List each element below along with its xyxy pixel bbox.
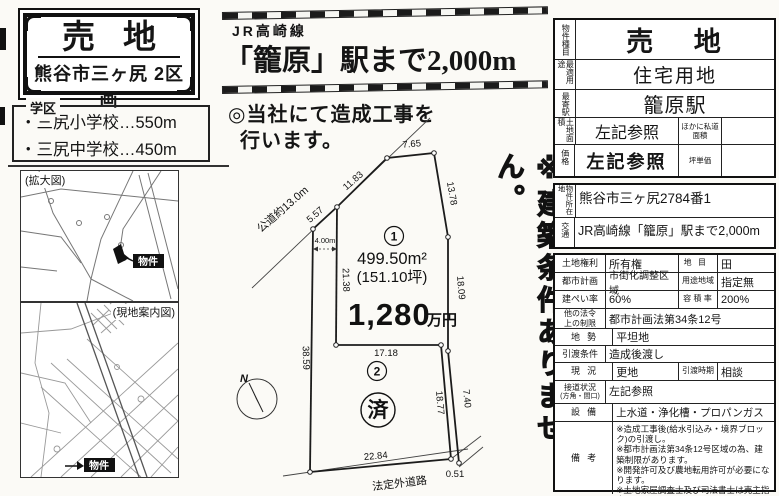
location-value: 熊谷市三ヶ尻2784番1 [576, 185, 774, 217]
measure-7-40: 7.40 [460, 389, 473, 409]
banner-divider [38, 56, 179, 58]
frame-ornament [25, 15, 41, 31]
row-label: 引渡条件 [555, 346, 606, 362]
other-restrictions-value: 都市計画法第34条12号 [606, 309, 774, 328]
banner-title: 売地 [27, 19, 191, 55]
row-handover-terms: 引渡条件 造成後渡し [555, 346, 774, 363]
private-road-area-label: ほかに私道面積 [678, 118, 722, 144]
row-label: 備考 [555, 422, 613, 494]
row-label: 物件種目 [555, 20, 576, 59]
north-label: N [240, 373, 249, 385]
row-label: 設備 [555, 404, 613, 421]
handover-timing-label: 引渡時期 [678, 363, 718, 380]
row-facilities: 設備 上水道・浄化槽・プロパンガス [555, 404, 774, 422]
property-marker-label: 物件 [89, 459, 109, 472]
measure-5-57: 5.57 [305, 205, 326, 225]
remarks-line: ※造成工事後(給水引込み・境界ブロック)の引渡し。 [616, 424, 771, 444]
row-topography: 地勢 平坦地 [555, 329, 774, 346]
row-label-line2: (方角・間口) [560, 393, 600, 401]
lot1-price: 1,280 [348, 297, 431, 332]
public-road-label: 公道約13.0m [254, 183, 311, 235]
row-label: 土地権利 [555, 255, 606, 272]
frame-ornament [177, 15, 193, 31]
property-marker-label: 物件 [138, 255, 158, 268]
frame-ornament [25, 77, 41, 93]
lot2-sold-stamp: 済 [368, 398, 390, 422]
measure-21-38: 21.38 [340, 268, 352, 292]
nearest-station-value: 籠原駅 [576, 90, 774, 117]
lot1-area-tsubo: (151.10坪) [357, 269, 428, 286]
row-property-type: 物件種目 売地 [555, 20, 774, 60]
row-city-planning: 都市計画 市街化調整区域 用途地域 指定無 [555, 273, 774, 291]
floor-area-ratio-value: 200% [718, 291, 774, 308]
row-label: 接道状況 (方角・間口) [555, 381, 606, 403]
row-label-line2: 上の制限 [564, 319, 596, 329]
measure-17-18: 17.18 [374, 348, 398, 359]
spec-table-block2: 物件所在地 熊谷市三ヶ尻2784番1 交通 JR高崎線「籠原」駅まで2,000m [553, 183, 776, 249]
row-label: 他の法令 上の制限 [555, 309, 606, 328]
row-land-area: 土地面積 左記参照 ほかに私道面積 [555, 118, 774, 145]
lot1-price-unit: 万円 [426, 312, 457, 329]
school-district-item: ・三尻中学校…450m [14, 140, 208, 161]
zoning-label: 用途地域 [678, 273, 718, 290]
city-planning-value: 市街化調整区域 [606, 273, 678, 290]
row-label: 土地面積 [555, 118, 576, 144]
measure-13-78: 13.78 [444, 181, 459, 206]
station-distance-headline: 「籠原」駅まで2,000m [224, 37, 516, 79]
measure-38-59: 38.59 [300, 346, 312, 370]
measure-18-09: 18.09 [454, 275, 467, 300]
row-other-restrictions: 他の法令 上の制限 都市計画法第34条12号 [555, 309, 774, 329]
price-value: 左記参照 [575, 145, 678, 176]
north-compass: N [237, 373, 277, 419]
remarks-text: ※造成工事後(給水引込み・境界ブロック)の引渡し。 ※都市計画法第34条12号区… [613, 422, 774, 494]
road-access-value: 左記参照 [606, 381, 774, 403]
measure-18-77: 18.77 [433, 390, 446, 415]
best-use-value: 住宅用地 [576, 60, 774, 89]
measure-4-00m: 4.00m [315, 236, 336, 245]
measure-22-84: 22.84 [363, 450, 388, 463]
arrow-icon [124, 254, 129, 261]
coverage-value: 60% [606, 291, 678, 308]
bottom-road-label: 法定外道路 [371, 473, 427, 494]
striped-bar [222, 6, 548, 20]
property-site-marker [113, 244, 126, 264]
row-label: 建ぺい率 [555, 291, 606, 308]
sale-banner-frame: 売地 熊谷市三ヶ尻 2区画 [23, 13, 195, 95]
row-remarks: 備考 ※造成工事後(給水引込み・境界ブロック)の引渡し。 ※都市計画法第34条1… [555, 422, 774, 494]
spec-table-block1: 物件種目 売地 最適用途 住宅用地 最寄駅 籠原駅 土地面積 左記参照 ほかに私… [553, 18, 776, 178]
row-coverage-ratio: 建ぺい率 60% 容積率 200% [555, 291, 774, 309]
row-label: 都市計画 [555, 273, 606, 290]
row-label: 最適用途 [555, 60, 576, 89]
facilities-value: 上水道・浄化槽・プロパンガス [613, 404, 774, 421]
current-state-value: 更地 [613, 363, 678, 380]
land-category-value: 田 [718, 255, 774, 272]
row-best-use: 最適用途 住宅用地 [555, 60, 774, 90]
location-guide-map-drawing: 物件 [21, 303, 178, 477]
enlarged-map: 物件 (拡大図) [20, 170, 179, 302]
row-label: 物件所在地 [555, 185, 576, 217]
lot1-number: 1 [391, 230, 398, 244]
access-value: JR高崎線「籠原」駅まで2,000m [575, 218, 774, 247]
remarks-line: ※都市計画法第34条12号区域の為、建築制限があります。 [616, 444, 771, 464]
measure-11-83: 11.83 [341, 169, 366, 192]
striped-bar [222, 80, 548, 94]
arrow-icon [77, 461, 84, 470]
sale-banner: 売地 熊谷市三ヶ尻 2区画 [18, 8, 200, 100]
private-road-area-value [722, 118, 774, 144]
flyer-page: 売地 熊谷市三ヶ尻 2区画 学区 ・三尻小学校…550m ・三尻中学校…450m [0, 0, 779, 496]
row-price: 価格 左記参照 坪単価 [555, 145, 774, 176]
lot1-left-boundary [336, 207, 337, 345]
spec-table-block3: 土地権利 所有権 地目 田 都市計画 市街化調整区域 用途地域 指定無 建ぺい率… [553, 253, 776, 492]
measure-0-51: 0.51 [446, 469, 465, 480]
school-district-box: 学区 ・三尻小学校…550m ・三尻中学校…450m [12, 105, 210, 162]
scan-artifact [0, 28, 6, 50]
scan-artifact [0, 107, 5, 125]
school-district-label: 学区 [26, 98, 60, 117]
enlarged-map-label: (拡大図) [23, 172, 67, 188]
row-location: 物件所在地 熊谷市三ヶ尻2784番1 [555, 185, 774, 218]
lot2-number: 2 [374, 365, 381, 379]
land-category-label: 地目 [678, 255, 718, 272]
divider-line [8, 165, 229, 167]
floor-area-ratio-label: 容積率 [678, 291, 718, 308]
row-label: 交通 [555, 218, 575, 247]
row-access: 交通 JR高崎線「籠原」駅まで2,000m [555, 218, 774, 247]
row-road-access: 接道状況 (方角・間口) 左記参照 [555, 381, 774, 404]
handover-timing-value: 相談 [718, 363, 774, 380]
remarks-line: ※開発許可及び農地転用許可が必要になります。 [616, 465, 771, 485]
enlarged-map-drawing: 物件 [21, 171, 178, 301]
row-label-line1: 他の法令 [564, 309, 596, 319]
location-guide-map: 物件 (現地案内図) [20, 302, 179, 478]
row-label: 地勢 [555, 329, 613, 345]
tsubo-unit-price-value [722, 145, 774, 176]
property-type-value: 売地 [576, 20, 774, 59]
row-label: 最寄駅 [555, 90, 576, 117]
lot1-area-m2: 499.50m² [357, 250, 427, 268]
row-label: 価格 [555, 145, 575, 176]
plot-survey-diagram: 公道約13.0m 5.57 11.83 7.65 13.78 18.09 21.… [218, 98, 485, 496]
location-guide-map-label: (現地案内図) [111, 304, 177, 320]
topography-value: 平坦地 [613, 329, 774, 345]
land-area-value: 左記参照 [576, 118, 678, 144]
row-current-state: 現況 更地 引渡時期 相談 [555, 363, 774, 381]
measure-7-65: 7.65 [402, 138, 421, 151]
zoning-value: 指定無 [718, 273, 774, 290]
remarks-line: ※土地家屋調査士及び司法書士は売主指定となります。 [616, 485, 771, 496]
tsubo-unit-price-label: 坪単価 [678, 145, 722, 176]
handover-terms-value: 造成後渡し [606, 346, 774, 362]
row-label: 現況 [555, 363, 613, 380]
row-label-line1: 接道状況 [564, 383, 596, 393]
row-nearest-station: 最寄駅 籠原駅 [555, 90, 774, 118]
